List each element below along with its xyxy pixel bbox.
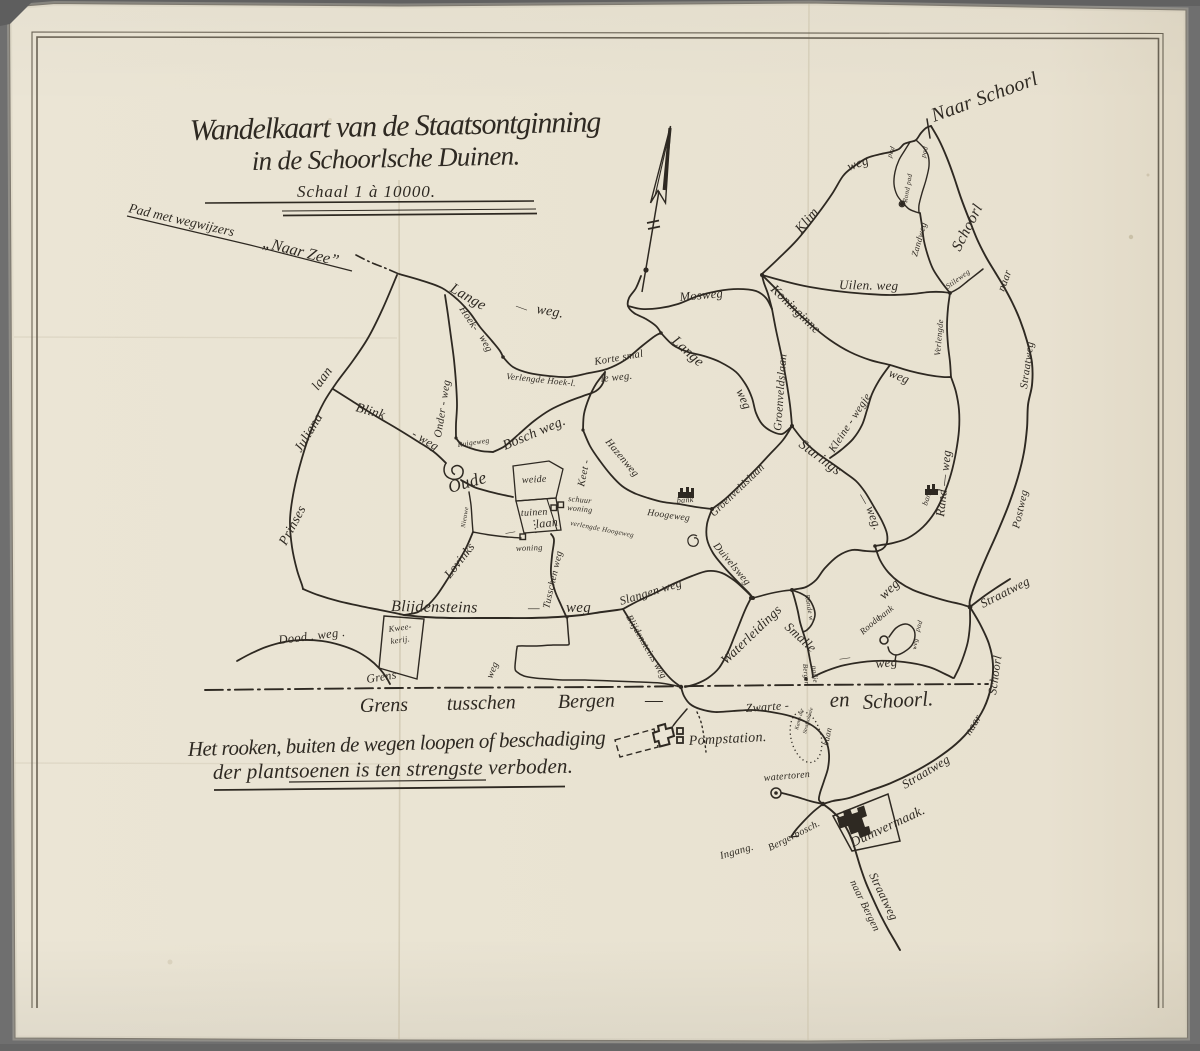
svg-text:Grens: Grens bbox=[360, 694, 409, 717]
svg-text:—: — bbox=[837, 650, 851, 666]
svg-text:weg: weg bbox=[566, 600, 591, 616]
svg-text:en: en bbox=[829, 687, 850, 712]
svg-text:weg: weg bbox=[875, 654, 898, 671]
svg-text:—: — bbox=[527, 600, 540, 615]
svg-text:Blijdensteins: Blijdensteins bbox=[391, 598, 478, 617]
svg-text:Bergen: Bergen bbox=[558, 690, 616, 713]
svg-text:woning: woning bbox=[516, 542, 543, 553]
svg-text:Schoorl.: Schoorl. bbox=[862, 686, 934, 714]
svg-text:laan: laan bbox=[535, 515, 559, 531]
svg-text:weide: weide bbox=[522, 474, 548, 486]
svg-text:bank: bank bbox=[677, 495, 694, 505]
svg-text:—: — bbox=[644, 689, 663, 711]
svg-text:padje: padje bbox=[810, 664, 820, 683]
svg-text:in de Schoorlsche Duinen.: in de Schoorlsche Duinen. bbox=[251, 140, 520, 176]
svg-text:—: — bbox=[503, 525, 516, 539]
svg-text:Uilen. weg: Uilen. weg bbox=[839, 277, 899, 293]
svg-text:Schaal 1 à 10000.: Schaal 1 à 10000. bbox=[297, 182, 435, 201]
svg-text:tusschen: tusschen bbox=[447, 691, 516, 715]
